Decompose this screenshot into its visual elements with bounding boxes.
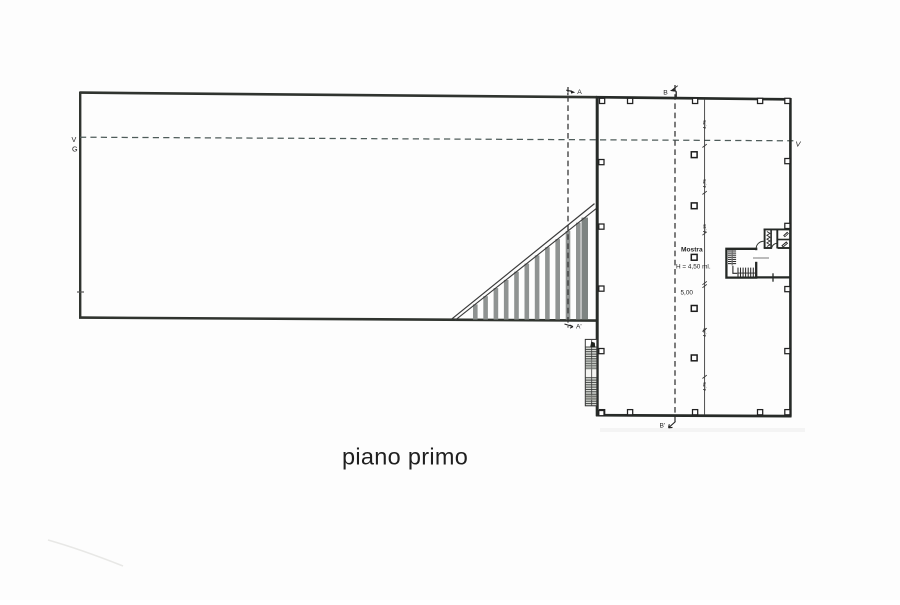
svg-text:5,00: 5,00 xyxy=(681,290,694,297)
svg-text:Mostra: Mostra xyxy=(681,247,703,254)
svg-text:B: B xyxy=(663,90,668,97)
svg-text:H = 4,50 ml.: H = 4,50 ml. xyxy=(676,264,711,271)
svg-text:G: G xyxy=(72,145,78,154)
svg-text:4,15: 4,15 xyxy=(702,224,707,233)
svg-text:A: A xyxy=(577,89,582,96)
svg-text:B': B' xyxy=(660,423,666,430)
svg-text:4,75: 4,75 xyxy=(702,382,707,391)
svg-text:V: V xyxy=(72,135,77,144)
svg-text:4,75: 4,75 xyxy=(702,179,707,188)
svg-text:A': A' xyxy=(576,324,582,331)
svg-text:piano primo: piano primo xyxy=(342,444,468,470)
svg-text:4,75: 4,75 xyxy=(702,328,707,337)
svg-text:4,75: 4,75 xyxy=(702,120,707,129)
